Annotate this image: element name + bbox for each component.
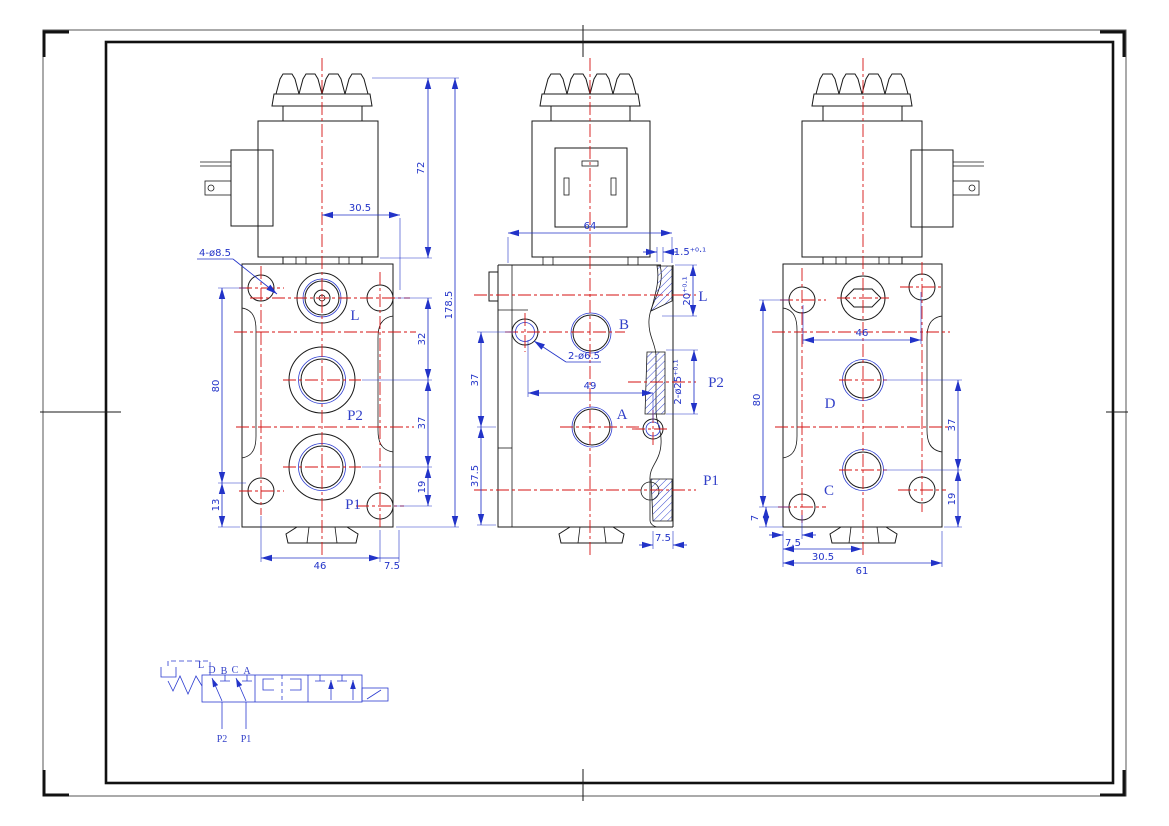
dim-2-o25: 2-ø25⁺⁰·¹	[673, 359, 684, 404]
schematic-label-d: D	[208, 665, 215, 676]
dim-19: 19	[947, 493, 958, 506]
dim-80: 80	[211, 380, 222, 393]
dim-72: 72	[416, 162, 427, 175]
dim-46: 46	[314, 561, 327, 572]
drawing-sheet: 30.5 72 178.5 32 37 19 80 13 46 7.5 4-ø8	[0, 0, 1169, 826]
dim-32: 32	[417, 333, 428, 346]
dim-30-5: 30.5	[349, 203, 371, 214]
dimensions: 30.5 72 178.5 32 37 19 80 13 46 7.5 4-ø8	[197, 78, 459, 572]
schematic-label-p1: P1	[241, 734, 252, 745]
cap-base	[551, 106, 630, 121]
port-p2: P2	[708, 375, 724, 391]
dim-49: 49	[584, 381, 597, 392]
schematic-label-a: A	[243, 666, 251, 677]
dim-64: 64	[584, 221, 597, 232]
cad-canvas: 30.5 72 178.5 32 37 19 80 13 46 7.5 4-ø8	[0, 0, 1169, 826]
dim-7-5: 7.5	[655, 533, 671, 544]
dimensions: 46 80 7 37 19 7.5 30.5 61	[750, 292, 962, 577]
bottom-nut	[559, 527, 624, 543]
blocked-port	[315, 675, 325, 681]
center-bracket-right	[290, 679, 301, 690]
corner-mark-tl	[44, 32, 69, 57]
valve-body	[489, 257, 673, 543]
dim-37: 37	[417, 417, 428, 430]
hatch-bore	[645, 352, 665, 414]
dim-19: 19	[417, 481, 428, 494]
flow-arrow-d	[212, 678, 222, 701]
dim-37: 37	[470, 374, 481, 387]
dim-1-5: 1.5⁺⁰·¹	[674, 247, 706, 258]
dim-37-5: 37.5	[470, 465, 481, 487]
port-p2: P2	[347, 408, 363, 424]
inner-border	[106, 42, 1113, 783]
port-a: A	[617, 407, 628, 423]
flow-arrow-c	[236, 678, 246, 701]
solenoid-coil	[532, 121, 650, 257]
schematic-label-b: B	[221, 666, 228, 677]
port-b: B	[619, 317, 629, 333]
schematic-label-l: L	[198, 660, 204, 671]
dim-20: 20⁺⁰·¹	[682, 276, 693, 305]
valve-body	[242, 257, 393, 543]
port-l: L	[698, 289, 707, 305]
sheet-frame	[40, 25, 1128, 801]
connector	[200, 150, 273, 226]
schematic-label-p2: P2	[217, 734, 228, 745]
solenoid-symbol	[362, 688, 388, 701]
spring-symbol	[168, 676, 202, 694]
outer-border	[43, 30, 1126, 796]
dim-7-5: 7.5	[384, 561, 400, 572]
blocked-port	[337, 675, 347, 681]
hatch-bottom	[651, 479, 672, 521]
connector-face	[555, 148, 627, 227]
dim-7: 7	[750, 515, 761, 521]
center-bracket-left	[263, 679, 274, 690]
back-view: 46 80 7 37 19 7.5 30.5 61 D C	[750, 58, 984, 577]
port-d: D	[825, 396, 836, 412]
cap-base	[823, 106, 902, 121]
dim-13: 13	[211, 499, 222, 512]
hatch-top	[651, 266, 672, 311]
dim-46: 46	[856, 328, 869, 339]
bottom-nut	[830, 527, 897, 543]
solenoid-coil	[258, 121, 378, 257]
port-p1: P1	[703, 473, 719, 489]
corner-mark-bl	[44, 770, 69, 795]
schematic-label-c: C	[232, 665, 239, 676]
port-p1: P1	[345, 497, 361, 513]
port-c: C	[824, 483, 834, 499]
tank-symbol	[161, 667, 176, 677]
port-l: L	[350, 308, 359, 324]
dim-7-5: 7.5	[785, 538, 801, 549]
centerlines	[772, 58, 950, 558]
knurled-cap	[812, 74, 912, 106]
hole-callout: 4-ø8.5	[199, 248, 231, 259]
side-view: 64 1.5⁺⁰·¹ 20⁺⁰·¹ 2-ø25⁺⁰·¹ 49 37 37.5 7…	[470, 58, 724, 558]
hole-callout: 2-ø6.5	[568, 351, 600, 362]
dim-80: 80	[752, 394, 763, 407]
dim-37: 37	[947, 419, 958, 432]
front-view: 30.5 72 178.5 32 37 19 80 13 46 7.5 4-ø8	[197, 58, 459, 572]
dim-178-5: 178.5	[444, 291, 455, 320]
solenoid-coil	[802, 121, 922, 257]
dim-30-5: 30.5	[812, 552, 834, 563]
hydraulic-schematic: L D B C A P2 P1	[161, 660, 388, 745]
dim-61: 61	[856, 566, 869, 577]
cap-base	[283, 106, 362, 121]
